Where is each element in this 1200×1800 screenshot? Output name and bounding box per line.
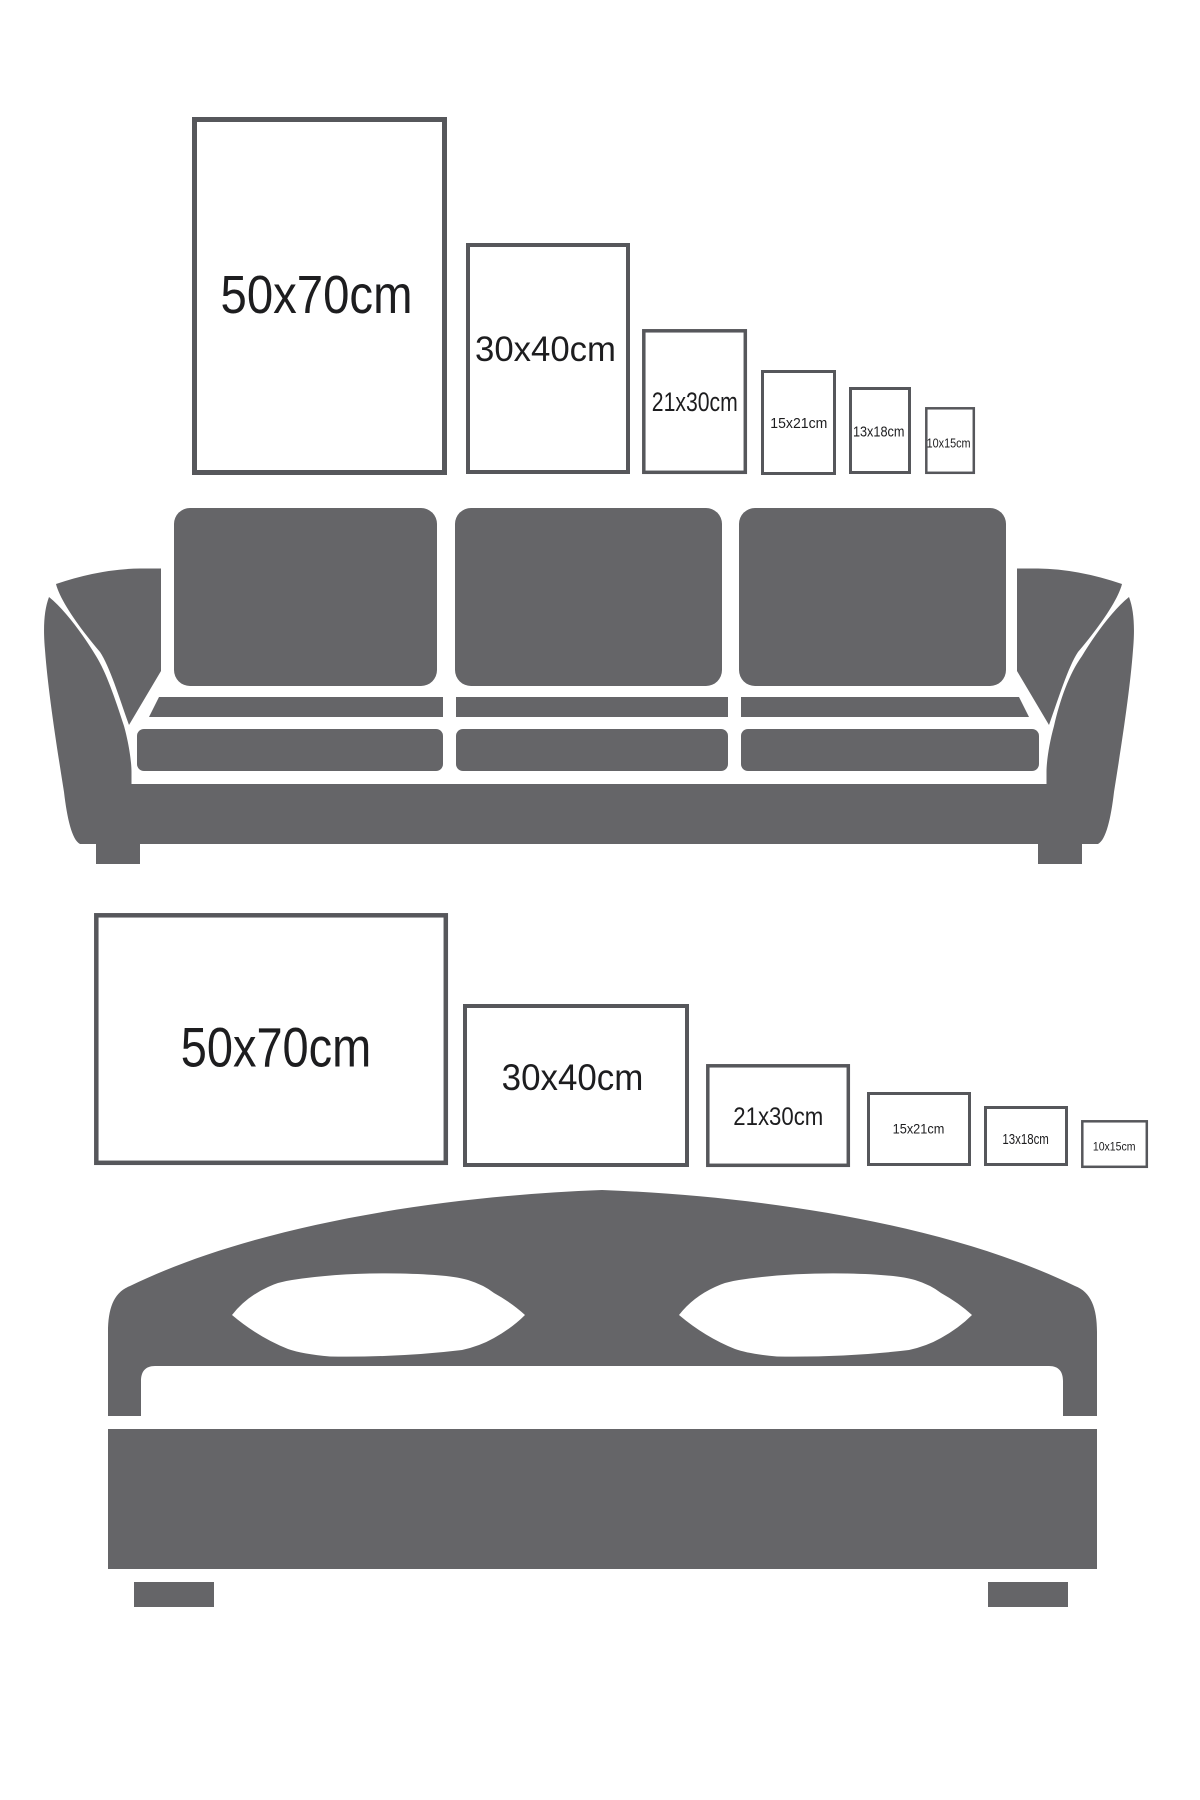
svg-text:50x70cm: 50x70cm — [181, 1016, 372, 1079]
svg-text:30x40cm: 30x40cm — [475, 330, 616, 369]
svg-text:21x30cm: 21x30cm — [733, 1103, 823, 1131]
svg-text:21x30cm: 21x30cm — [652, 387, 738, 417]
svg-text:15x21cm: 15x21cm — [770, 416, 827, 432]
svg-text:30x40cm: 30x40cm — [502, 1057, 644, 1098]
svg-text:15x21cm: 15x21cm — [893, 1122, 945, 1137]
svg-text:13x18cm: 13x18cm — [853, 424, 905, 441]
svg-text:50x70cm: 50x70cm — [221, 265, 413, 325]
svg-text:10x15cm: 10x15cm — [1093, 1139, 1136, 1153]
svg-text:10x15cm: 10x15cm — [927, 436, 971, 450]
svg-text:13x18cm: 13x18cm — [1002, 1132, 1049, 1148]
